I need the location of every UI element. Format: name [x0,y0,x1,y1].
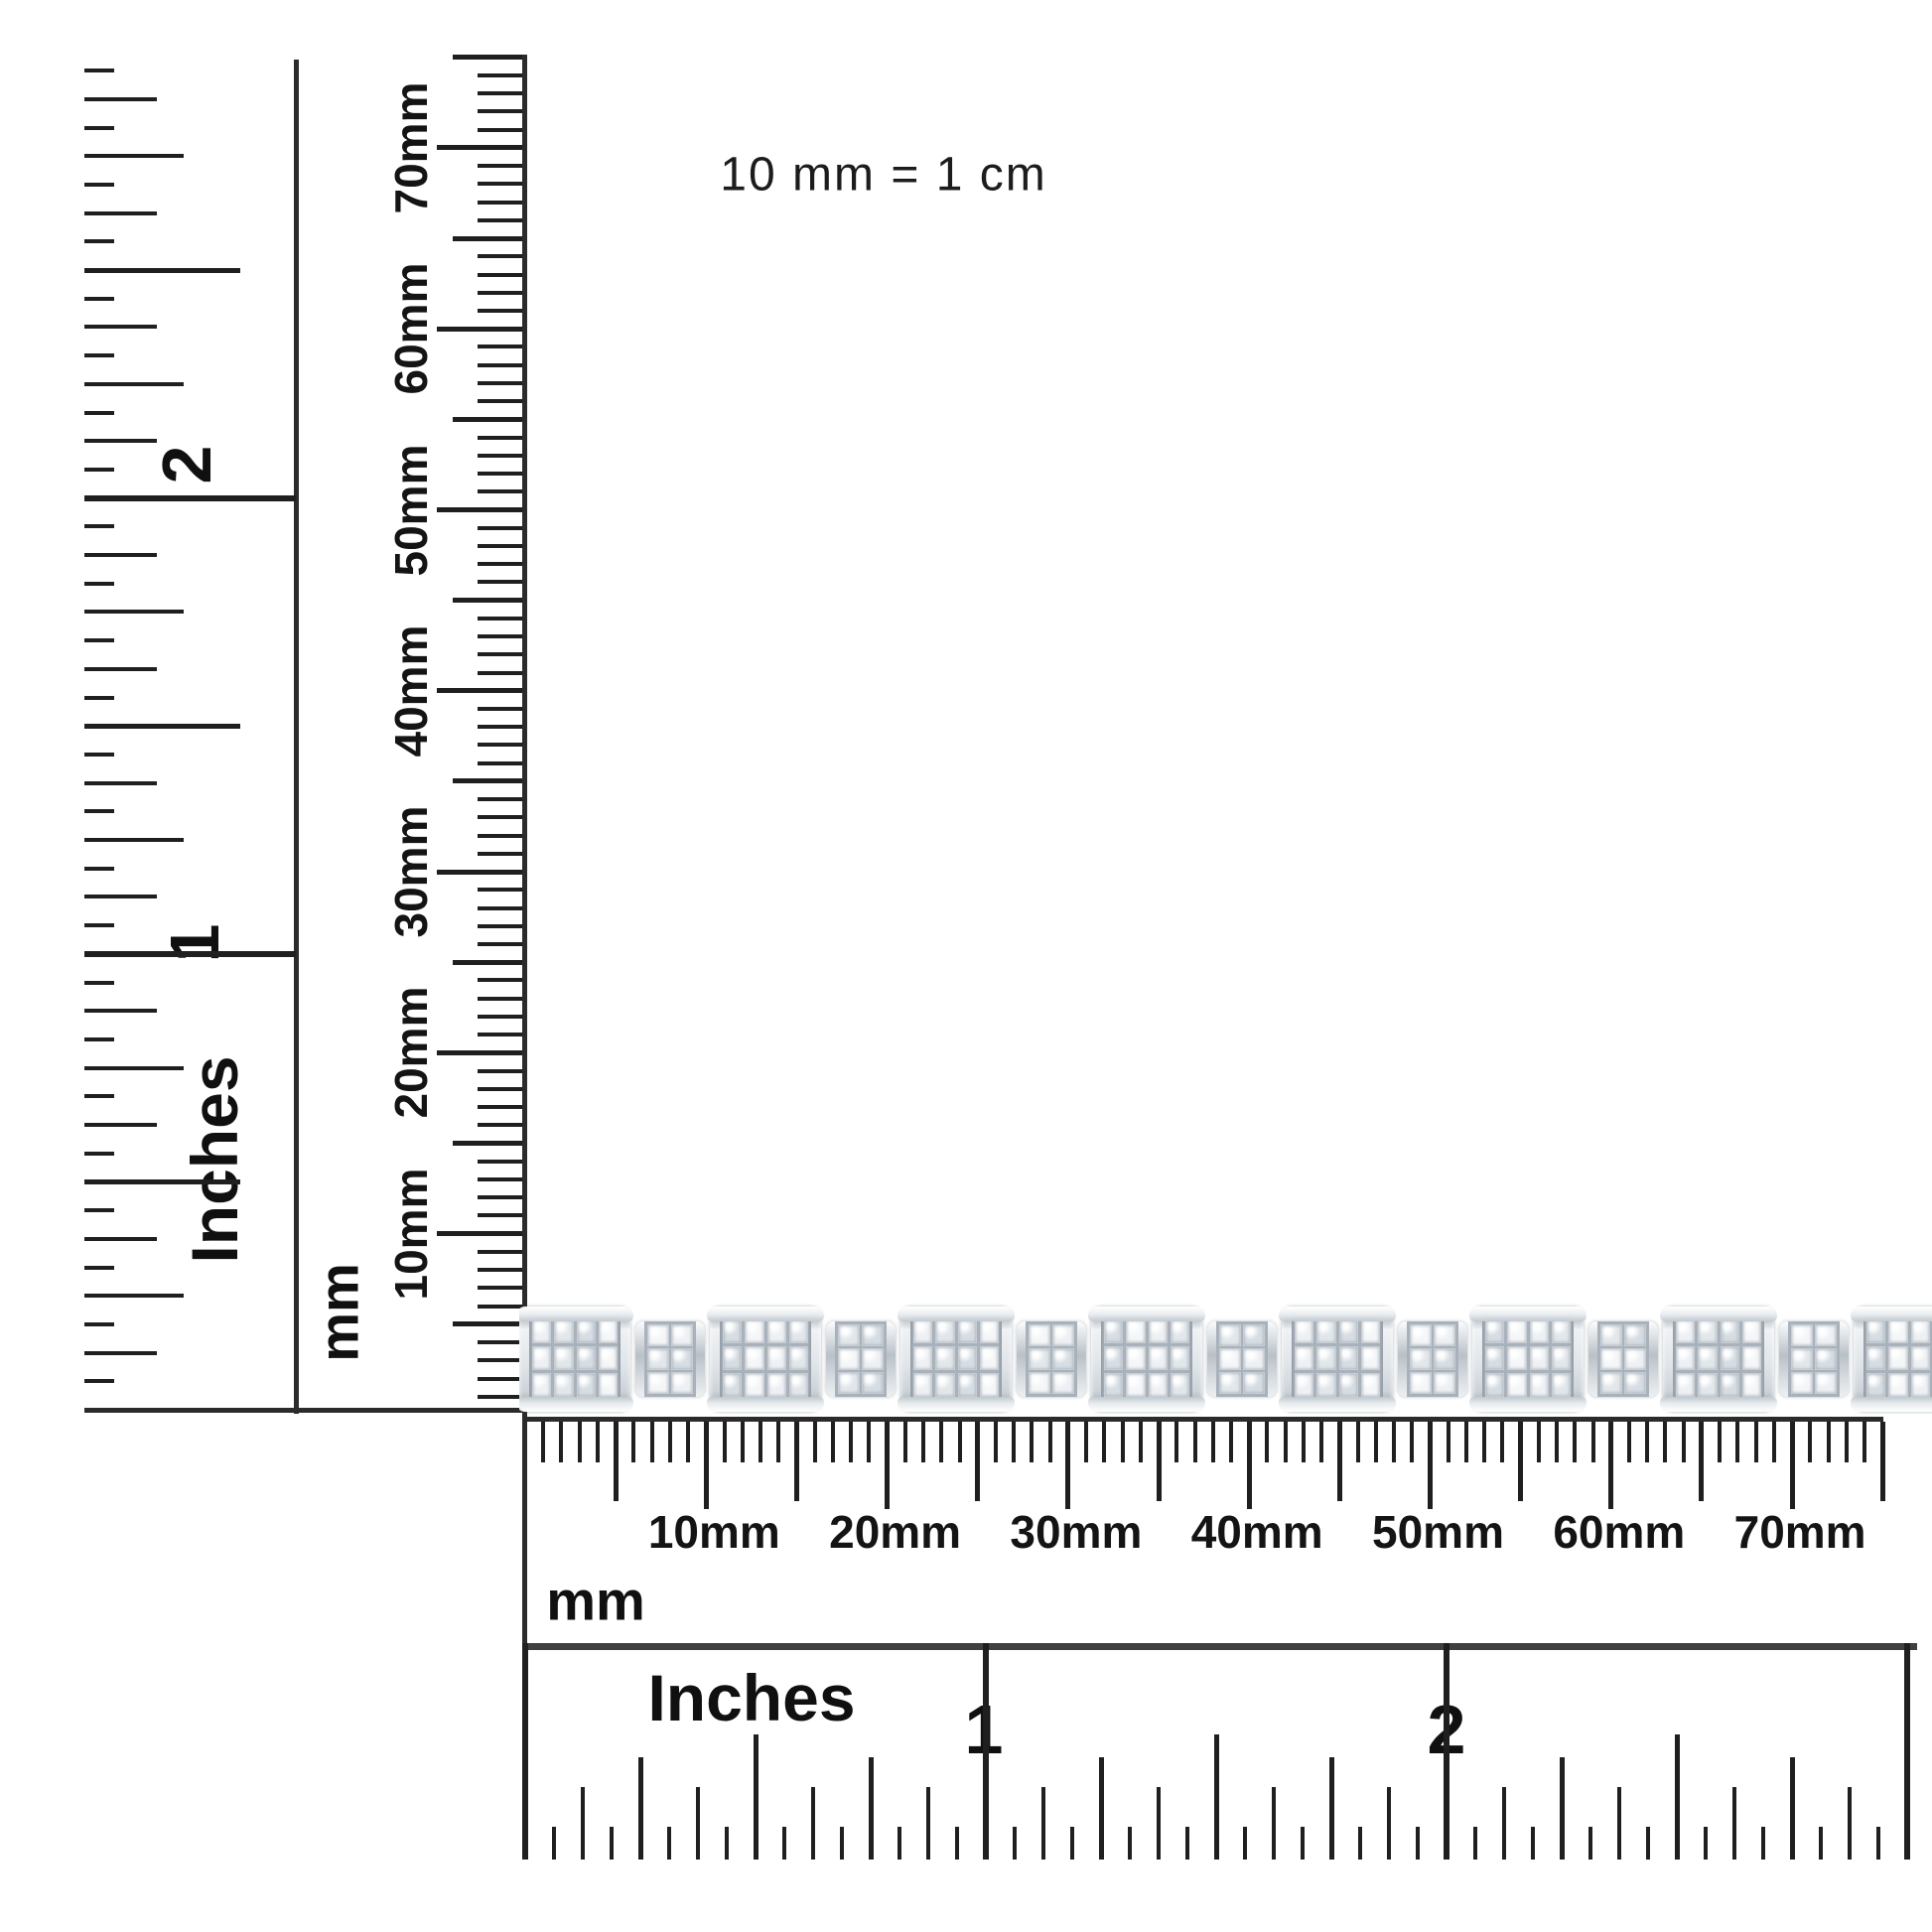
inch-tick-quarter [1790,1757,1795,1860]
link-metal-bar [826,1321,835,1397]
diamond-facet [1888,1373,1907,1397]
diamond-facet [1742,1346,1761,1370]
diamond-facet [1434,1372,1455,1394]
diamond-facet [789,1373,808,1397]
inch-tick-sixteenth [84,1094,114,1098]
diamond-facet [1676,1373,1695,1397]
inch-tick-eighth [1502,1787,1506,1860]
diamond-facet [671,1372,693,1394]
link-metal-bar [1398,1321,1407,1397]
mm-tick-minor [903,1422,907,1462]
inch-tick-sixteenth [1070,1827,1074,1860]
mm-tick-minor [813,1422,817,1462]
inch-tick-eighth [84,1237,157,1241]
diamond-facet [532,1346,551,1370]
mm-tick-minor [478,815,522,819]
diamond-facet [1888,1346,1907,1370]
horizontal-mm-tick-label: 60mm [1553,1505,1685,1559]
mm-tick-minor [1863,1422,1866,1462]
diamond-facet [1791,1372,1813,1394]
mm-tick-minor [776,1422,780,1462]
inch-tick-sixteenth [1531,1827,1535,1860]
link-metal-bar [887,1321,896,1397]
bracelet-link-large [1472,1307,1584,1412]
diamond-facet [1361,1319,1380,1343]
horizontal-mm-tick-label: 20mm [829,1505,961,1559]
mm-tick-minor [1464,1422,1468,1462]
mm-tick-minor [1682,1422,1686,1462]
diamond-facet [1052,1348,1074,1370]
link-metal-cap [1279,1307,1396,1321]
mm-tick-minor [478,454,522,458]
link-metal-bar [1779,1321,1788,1397]
inch-tick-quarter [84,382,184,386]
diamond-facet [1742,1319,1761,1343]
link-metal-cap [1088,1397,1205,1412]
horizontal-mm-tick-label: 40mm [1191,1505,1323,1559]
inch-tick-sixteenth [84,353,114,357]
inch-tick-eighth [84,211,157,215]
mm-tick-minor [1627,1422,1631,1462]
mm-tick-minor [1410,1422,1414,1462]
mm-tick-minor [478,1250,522,1254]
bracelet-link-large [710,1307,821,1412]
inch-tick-sixteenth [84,582,114,586]
diamond-facet [1126,1373,1145,1397]
diamond-facet [1552,1319,1571,1343]
diamond-facet [577,1373,596,1397]
pave-diamond-grid [910,1316,1002,1400]
diamond-facet [1552,1346,1571,1370]
vertical-mm-tick-label: 40mm [384,624,438,757]
diamond-facet [1815,1324,1837,1346]
bracelet-link-large [1282,1307,1393,1412]
inch-tick-half [84,268,240,273]
mm-tick-minor [478,489,522,493]
link-metal-cap [1279,1397,1396,1412]
mm-tick-minor [686,1422,690,1462]
inch-tick-full [1904,1643,1910,1860]
vertical-mm-tick-label: 20mm [384,987,438,1119]
pave-diamond-grid [1407,1321,1458,1397]
mm-tick-minor [1645,1422,1649,1462]
mm-tick-minor [478,888,522,892]
diamond-facet [913,1373,932,1397]
bracelet-link-large [900,1307,1012,1412]
diamond-facet [767,1373,786,1397]
mm-tick-minor [478,906,522,910]
mm-tick-10 [437,145,522,150]
mm-tick-minor [478,1305,522,1309]
bracelet-link-small [1398,1321,1467,1397]
diamond-facet [1149,1373,1168,1397]
inch-tick-quarter [84,1066,184,1070]
mm-tick-minor [478,942,522,946]
pave-diamond-grid [1597,1321,1649,1397]
diamond-facet [1552,1373,1571,1397]
diamond-facet [1339,1346,1358,1370]
diamond-facet [647,1348,669,1370]
diamond-facet [958,1319,977,1343]
inch-tick-sixteenth [1473,1827,1477,1860]
inch-tick-quarter [84,838,184,842]
mm-tick-minor [478,707,522,711]
inch-tick-sixteenth [782,1827,786,1860]
bracelet-link-large [1663,1307,1774,1412]
mm-tick-minor [478,381,522,385]
inch-tick-sixteenth [1358,1827,1362,1860]
diamond-facet [1104,1319,1123,1343]
mm-tick-minor [631,1422,635,1462]
link-metal-cap [707,1397,824,1412]
diamond-facet [1219,1348,1241,1370]
horizontal-mm-unit-label: mm [546,1569,645,1633]
mm-tick-5 [453,960,522,965]
diamond-facet [1295,1319,1313,1343]
diamond-facet [1316,1319,1335,1343]
horizontal-mm-tick-label: 50mm [1372,1505,1504,1559]
mm-tick-minor [478,73,522,77]
mm-tick-minor [478,580,522,584]
link-metal-cap [1851,1397,1932,1412]
diamond-facet [1866,1346,1885,1370]
vertical-mm-tick-label: 70mm [384,81,438,213]
diamond-bracelet [519,1299,1932,1420]
link-metal-bar [1077,1321,1086,1397]
bottom-inch-unit-label: Inches [647,1660,855,1735]
mm-tick-minor [559,1422,563,1462]
inch-tick-sixteenth [1416,1827,1420,1860]
mm-tick-10 [437,1050,522,1055]
inch-tick-sixteenth [1819,1827,1823,1860]
diamond-facet [1149,1346,1168,1370]
mm-tick-minor [1030,1422,1034,1462]
mm-tick-minor [1482,1422,1486,1462]
mm-tick-minor [478,544,522,548]
diamond-facet [1507,1373,1526,1397]
mm-tick-minor [478,1340,522,1344]
horizontal-mm-tick-label: 70mm [1734,1505,1866,1559]
mm-tick-10 [704,1422,709,1509]
diamond-facet [1410,1372,1432,1394]
mm-tick-minor [1718,1422,1722,1462]
diamond-facet [1029,1348,1050,1370]
inch-tick-quarter [1329,1757,1334,1860]
link-metal-cap [1088,1307,1205,1321]
diamond-facet [1219,1372,1241,1394]
mm-tick-minor [849,1422,853,1462]
inch-tick-eighth [1848,1787,1852,1860]
mm-tick-minor [478,743,522,747]
inch-tick-sixteenth [84,468,114,472]
diamond-facet [1815,1348,1837,1370]
mm-tick-minor [921,1422,925,1462]
mm-tick-minor [1754,1422,1758,1462]
left-inch-unit-label: Inches [177,1055,252,1263]
diamond-facet [1361,1346,1380,1370]
mm-tick-5 [614,1422,619,1501]
inch-tick-sixteenth [552,1827,556,1860]
mm-tick-minor [1500,1422,1504,1462]
link-metal-bar [635,1321,644,1397]
mm-tick-minor [1591,1422,1595,1462]
mm-tick-minor [478,1160,522,1164]
inch-tick-half [84,1179,240,1184]
mm-tick-minor [867,1422,871,1462]
mm-tick-minor [478,182,522,186]
mm-tick-minor [478,797,522,801]
inch-tick-sixteenth [84,183,114,187]
mm-tick-minor [1374,1422,1378,1462]
mm-tick-minor [478,128,522,132]
diamond-facet [1295,1373,1313,1397]
inch-tick-quarter [84,610,184,614]
link-metal-cap [519,1397,633,1412]
diamond-facet [745,1319,763,1343]
horizontal-mm-tick-label: 10mm [648,1505,780,1559]
mm-tick-5 [453,778,522,783]
mm-tick-minor [1663,1422,1667,1462]
mm-tick-minor [478,671,522,675]
mm-tick-minor [1174,1422,1178,1462]
diamond-facet [1410,1324,1432,1346]
mm-tick-minor [1573,1422,1577,1462]
link-metal-cap [707,1307,824,1321]
inch-tick-eighth [84,97,157,101]
mm-tick-minor [478,291,522,295]
inch-tick-quarter [1099,1757,1104,1860]
bracelet-link-small [1017,1321,1086,1397]
diamond-facet [1219,1324,1241,1346]
link-metal-cap [1851,1307,1932,1321]
mm-tick-minor [541,1422,545,1462]
mm-tick-10 [885,1422,890,1509]
pave-diamond-grid [1026,1321,1077,1397]
inch-tick-sixteenth [84,411,114,415]
diamond-facet [1530,1346,1549,1370]
diamond-facet [1104,1346,1123,1370]
inch-tick-half [1675,1734,1680,1860]
mm-tick-minor [478,1069,522,1073]
diamond-facet [1866,1319,1885,1343]
diamond-facet [935,1373,954,1397]
inch-tick-sixteenth [84,1379,114,1383]
diamond-facet [1624,1324,1646,1346]
inch-tick-sixteenth [84,1208,114,1212]
vertical-mm-tick-label: 50mm [384,444,438,576]
inch-tick-half [754,1734,759,1860]
diamond-facet [1911,1319,1930,1343]
diamond-facet [1721,1373,1739,1397]
bracelet-link-small [826,1321,896,1397]
diamond-facet [1600,1324,1622,1346]
inch-tick-sixteenth [725,1827,729,1860]
inch-tick-eighth [84,553,157,557]
diamond-facet [862,1372,884,1394]
mm-tick-minor [478,472,522,476]
mm-tick-minor [1808,1422,1812,1462]
bracelet-link-small [635,1321,705,1397]
mm-tick-minor [596,1422,600,1462]
left-inch-ruler-bottom-line [84,1408,527,1413]
diamond-facet [1126,1346,1145,1370]
mm-tick-minor [1555,1422,1559,1462]
diamond-facet [1911,1373,1930,1397]
mm-tick-5 [453,1321,522,1326]
inch-tick-eighth [84,1351,157,1355]
mm-tick-5 [1337,1422,1342,1501]
diamond-facet [1434,1324,1455,1346]
pave-diamond-grid [720,1316,811,1400]
diamond-facet [1149,1319,1168,1343]
inch-tick-sixteenth [1013,1827,1017,1860]
mm-tick-minor [1845,1422,1849,1462]
inch-tick-eighth [84,1123,157,1127]
inch-tick-eighth [84,781,157,785]
inch-tick-sixteenth [84,1037,114,1041]
diamond-facet [1361,1373,1380,1397]
diamond-facet [980,1373,999,1397]
link-metal-bar [696,1321,705,1397]
inch-tick-sixteenth [84,1152,114,1156]
mm-tick-minor [759,1422,762,1462]
mm-tick-minor [478,1015,522,1019]
diamond-facet [532,1373,551,1397]
inch-tick-quarter [869,1757,874,1860]
mm-tick-minor [478,852,522,856]
diamond-facet [671,1324,693,1346]
inch-tick-quarter [84,1294,184,1298]
link-metal-bar [1458,1321,1467,1397]
mm-tick-minor [478,1286,522,1290]
mm-tick-minor [478,562,522,566]
inch-tick-eighth [1272,1787,1276,1860]
mm-tick-10 [1428,1422,1433,1509]
vertical-mm-tick-label: 10mm [384,1168,438,1300]
diamond-facet [554,1346,573,1370]
diamond-facet [1911,1346,1930,1370]
inch-tick-eighth [581,1787,585,1860]
bracelet-link-small [1779,1321,1849,1397]
diamond-facet [577,1319,596,1343]
mm-tick-minor [478,201,522,205]
inch-tick-sixteenth [84,1322,114,1326]
inch-tick-half [1214,1734,1219,1860]
mm-tick-minor [478,1358,522,1362]
mm-tick-minor [1193,1422,1197,1462]
diamond-facet [554,1319,573,1343]
inch-tick-sixteenth [1761,1827,1765,1860]
diamond-facet [723,1373,742,1397]
pave-diamond-grid [1292,1316,1383,1400]
bracelet-link-small [1207,1321,1277,1397]
link-metal-cap [897,1397,1015,1412]
diamond-facet [1866,1373,1885,1397]
inch-tick-sixteenth [897,1827,901,1860]
inch-tick-sixteenth [84,753,114,757]
mm-tick-minor [478,1377,522,1381]
diamond-facet [1507,1346,1526,1370]
link-metal-cap [1469,1307,1587,1321]
inch-tick-eighth [84,667,157,671]
diamond-facet [789,1319,808,1343]
diamond-facet [1485,1346,1504,1370]
inch-tick-full [983,1643,989,1860]
mm-tick-5 [453,1141,522,1146]
mm-tick-minor [1302,1422,1306,1462]
diamond-facet [980,1319,999,1343]
inch-tick-sixteenth [1704,1827,1708,1860]
diamond-facet [767,1319,786,1343]
diamond-facet [1171,1346,1189,1370]
pave-diamond-grid [529,1316,621,1400]
vertical-mm-baseline [522,55,527,1860]
diamond-facet [1295,1346,1313,1370]
diamond-facet [1104,1373,1123,1397]
mm-tick-minor [478,526,522,530]
mm-tick-minor [1537,1422,1541,1462]
diamond-facet [1171,1373,1189,1397]
mm-tick-minor [1827,1422,1831,1462]
diamond-facet [935,1319,954,1343]
mm-tick-10 [437,870,522,875]
inch-tick-sixteenth [610,1827,614,1860]
mm-tick-minor [650,1422,654,1462]
diamond-facet [1600,1372,1622,1394]
inch-tick-eighth [1387,1787,1391,1860]
mm-tick-minor [478,399,522,403]
pave-diamond-grid [1673,1316,1764,1400]
mm-tick-5 [453,417,522,422]
diamond-facet [1243,1324,1265,1346]
mm-tick-minor [1211,1422,1215,1462]
vertical-mm-tick-label: 60mm [384,263,438,395]
mm-tick-minor [1284,1422,1288,1462]
diamond-facet [599,1346,618,1370]
mm-tick-10 [437,327,522,332]
mm-tick-minor [478,1087,522,1091]
diamond-facet [1721,1346,1739,1370]
left-inch-number-2: 2 [147,446,226,484]
diamond-facet [599,1319,618,1343]
bottom-inch-top-line [522,1643,1917,1650]
mm-tick-minor [1265,1422,1269,1462]
mm-tick-minor [1102,1422,1106,1462]
mm-tick-10 [437,507,522,512]
diamond-facet [1530,1319,1549,1343]
mm-tick-minor [478,1395,522,1399]
inch-tick-sixteenth [1876,1827,1880,1860]
mm-tick-5 [975,1422,980,1501]
mm-tick-minor [668,1422,672,1462]
inch-tick-sixteenth [955,1827,959,1860]
mm-tick-minor [478,436,522,440]
diamond-facet [767,1346,786,1370]
mm-tick-minor [1084,1422,1088,1462]
diamond-facet [1029,1324,1050,1346]
inch-tick-sixteenth [84,867,114,871]
diamond-facet [1698,1373,1717,1397]
inch-tick-full [84,951,296,957]
inch-tick-sixteenth [1588,1827,1592,1860]
inch-tick-full [84,495,296,501]
pave-diamond-grid [644,1321,696,1397]
mm-tick-minor [723,1422,727,1462]
diamond-facet [1507,1319,1526,1343]
diamond-facet [1052,1372,1074,1394]
inch-tick-sixteenth [84,638,114,642]
mm-tick-minor [1048,1422,1052,1462]
